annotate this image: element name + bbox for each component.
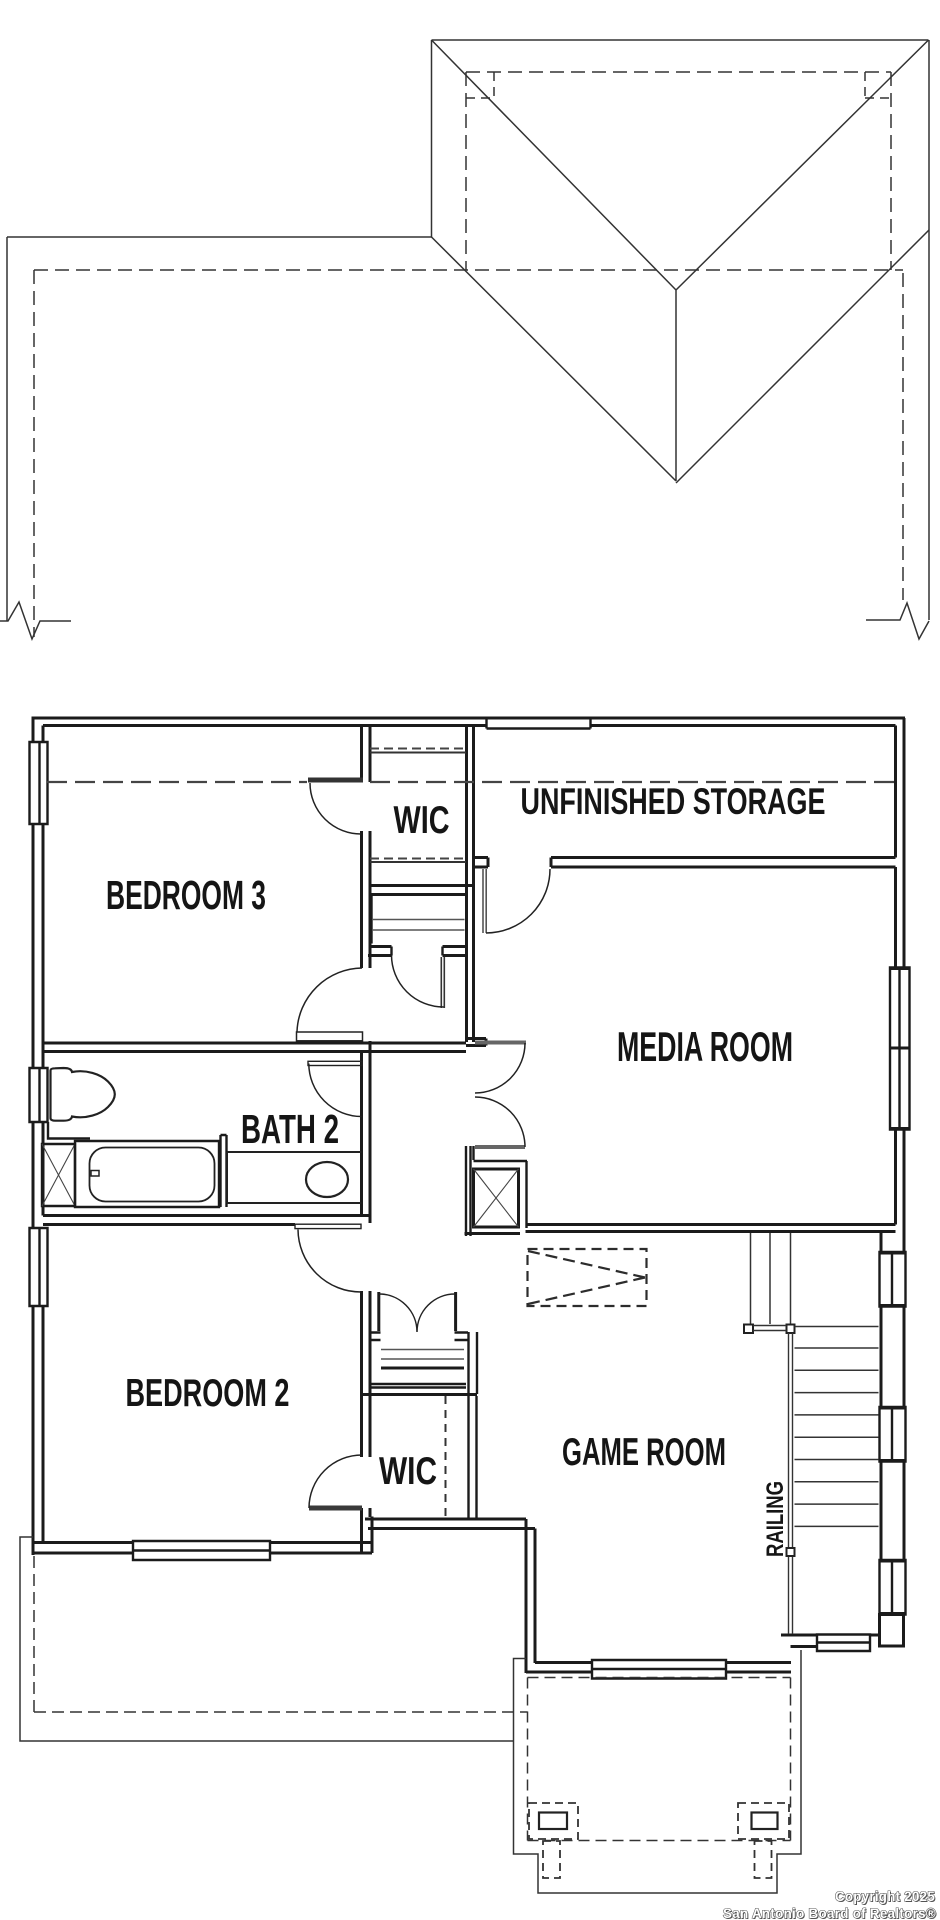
svg-text:San Antonio Board of Realtors®: San Antonio Board of Realtors®	[723, 1906, 936, 1920]
svg-text:GAME ROOM: GAME ROOM	[562, 1431, 726, 1474]
svg-text:WIC: WIC	[379, 1450, 437, 1493]
svg-text:Copyright 2025: Copyright 2025	[835, 1889, 935, 1904]
svg-text:MEDIA ROOM: MEDIA ROOM	[617, 1023, 793, 1070]
svg-text:RAILING: RAILING	[762, 1481, 789, 1557]
svg-text:BATH 2: BATH 2	[241, 1106, 339, 1152]
svg-text:UNFINISHED STORAGE: UNFINISHED STORAGE	[521, 781, 826, 822]
svg-text:BEDROOM 3: BEDROOM 3	[106, 872, 266, 918]
svg-text:WIC: WIC	[394, 799, 450, 842]
svg-text:BEDROOM 2: BEDROOM 2	[126, 1372, 290, 1415]
